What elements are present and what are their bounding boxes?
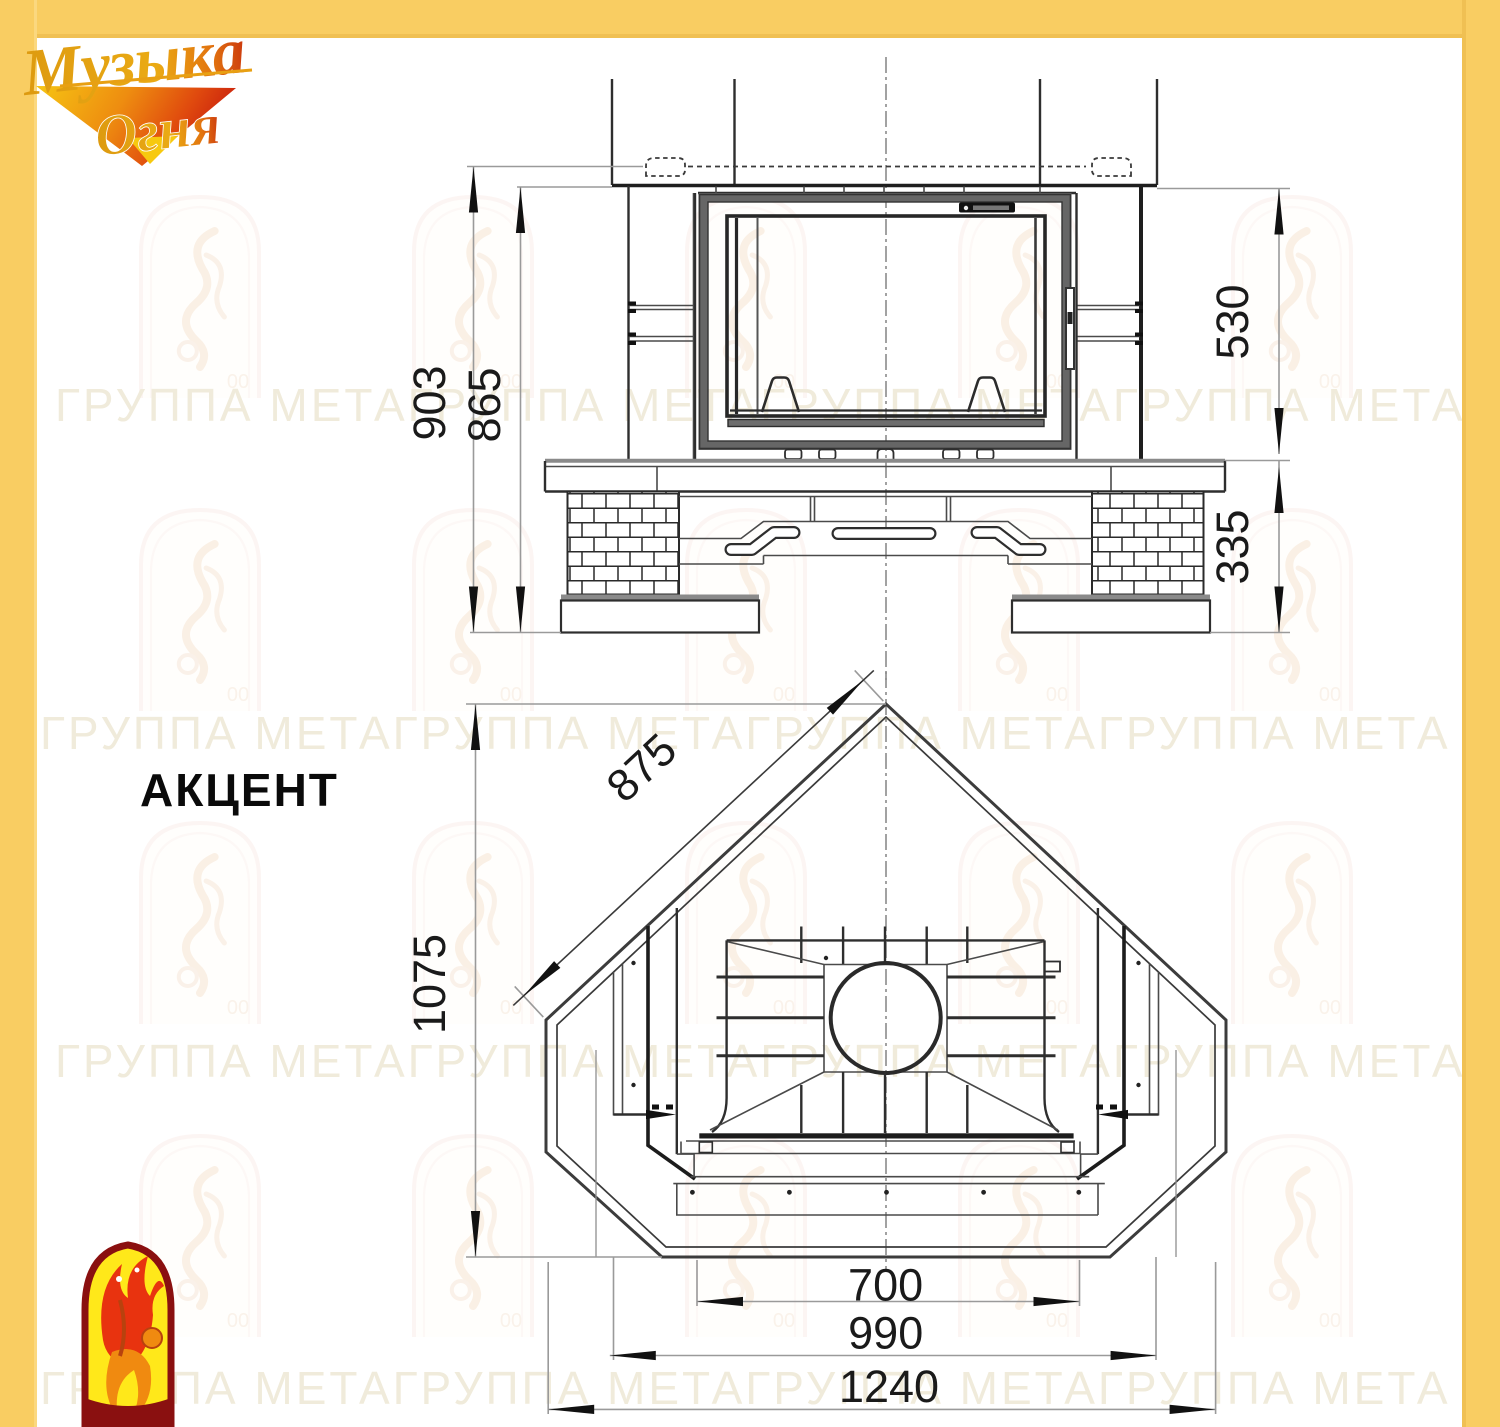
svg-text:990: 990 [848, 1308, 923, 1359]
svg-text:00: 00 [773, 684, 795, 706]
svg-text:530: 530 [1207, 284, 1258, 359]
svg-text:700: 700 [848, 1260, 923, 1311]
svg-text:АКЦЕНТ: АКЦЕНТ [140, 764, 339, 816]
svg-text:00: 00 [773, 997, 795, 1019]
svg-text:00: 00 [773, 1310, 795, 1332]
svg-text:ГРУППА МЕТАГРУППА МЕТАГРУППА М: ГРУППА МЕТАГРУППА МЕТАГРУППА МЕТАГРУППА … [40, 707, 1451, 759]
svg-text:00: 00 [500, 684, 522, 706]
svg-text:00: 00 [1046, 684, 1068, 706]
svg-text:00: 00 [227, 997, 249, 1019]
svg-text:00: 00 [1319, 997, 1341, 1019]
svg-text:1075: 1075 [404, 934, 455, 1034]
svg-text:00: 00 [227, 1310, 249, 1332]
svg-text:ГРУППА МЕТАГРУППА МЕТАГРУППА М: ГРУППА МЕТАГРУППА МЕТАГРУППА МЕТАГРУППА … [40, 1362, 1451, 1414]
svg-text:Огня: Огня [92, 91, 223, 169]
svg-text:ГРУППА МЕТАГРУППА МЕТАГРУППА М: ГРУППА МЕТАГРУППА МЕТАГРУППА МЕТАГРУППА … [55, 1035, 1466, 1087]
svg-text:1240: 1240 [839, 1361, 939, 1412]
svg-text:00: 00 [1319, 684, 1341, 706]
svg-text:00: 00 [1046, 997, 1068, 1019]
svg-text:903: 903 [404, 365, 455, 440]
svg-text:335: 335 [1207, 509, 1258, 584]
svg-text:00: 00 [1046, 1310, 1068, 1332]
svg-text:00: 00 [500, 1310, 522, 1332]
svg-text:00: 00 [1319, 1310, 1341, 1332]
svg-text:865: 865 [459, 367, 510, 442]
svg-text:00: 00 [227, 684, 249, 706]
